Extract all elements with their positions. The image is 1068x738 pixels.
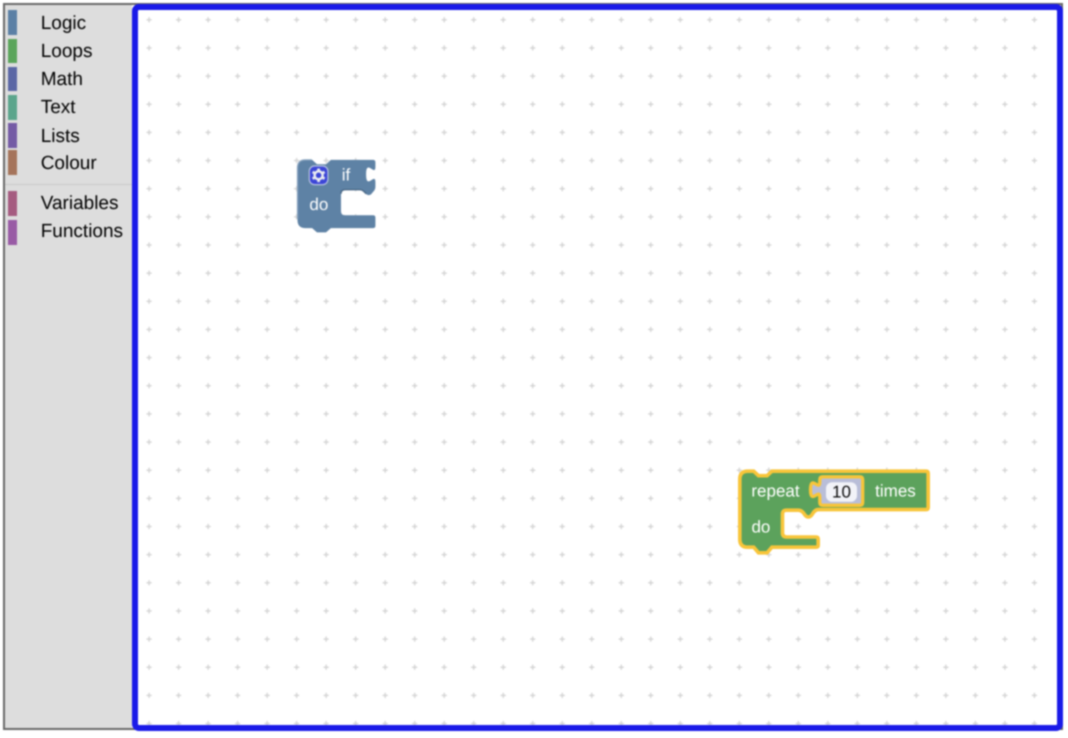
svg-text:if: if bbox=[342, 166, 351, 185]
svg-text:times: times bbox=[875, 482, 916, 501]
svg-text:repeat: repeat bbox=[752, 482, 800, 501]
svg-text:do: do bbox=[310, 195, 329, 214]
svg-text:10: 10 bbox=[832, 483, 851, 502]
svg-text:do: do bbox=[752, 518, 771, 537]
